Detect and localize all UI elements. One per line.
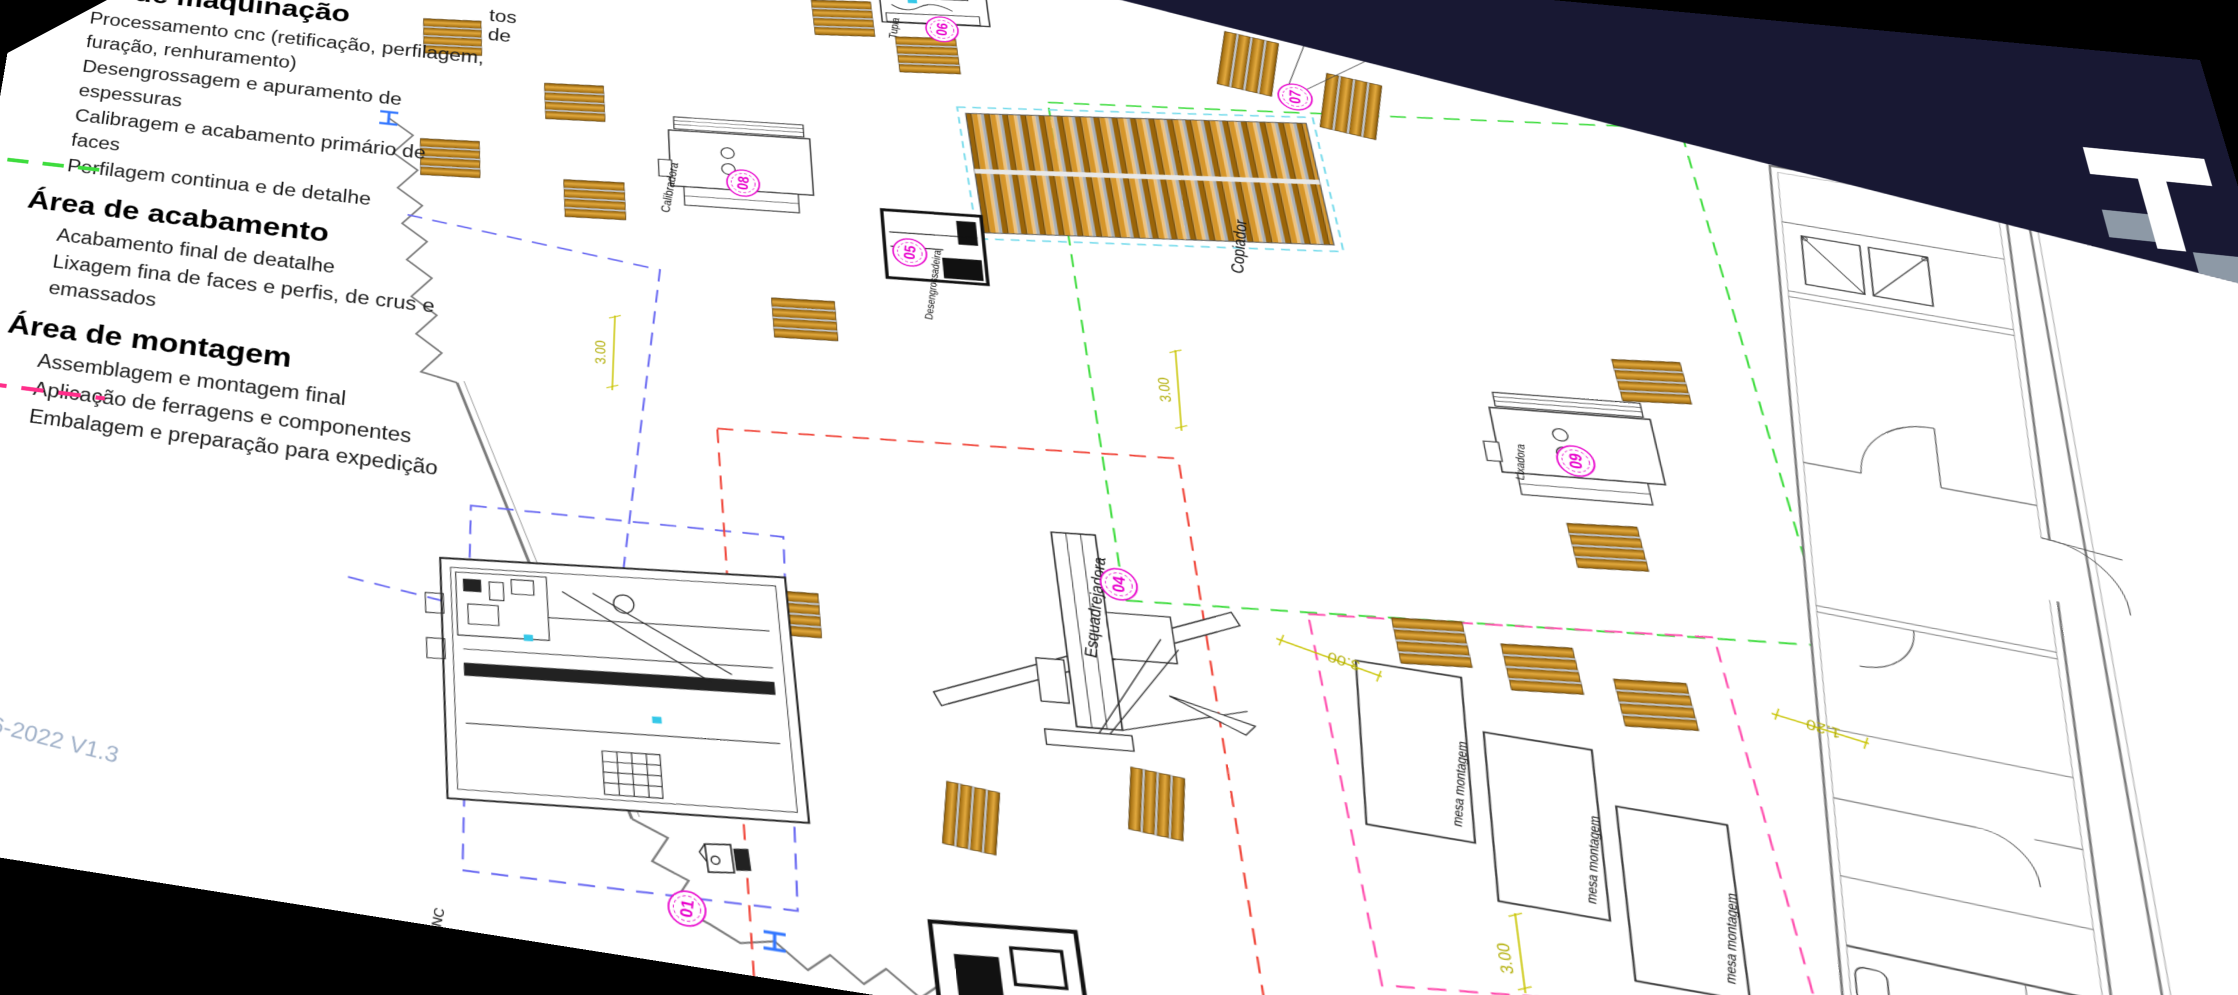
pallet-stack	[1567, 523, 1649, 571]
machine-label-lixadora: Lixadora	[1514, 442, 1527, 481]
canvas: 3.00 3.00 3.00 3.00 1.20 CNC Esquadrejad…	[0, 0, 2238, 995]
legend: tos de Área de maquinação Processamento …	[0, 0, 492, 486]
assembly-table-label: mesa montagem	[1583, 814, 1602, 906]
pallet-stack	[1392, 618, 1472, 667]
pallet-stack	[1320, 74, 1381, 140]
machine-label-cnc: CNC	[428, 906, 449, 938]
machine-cnc	[424, 557, 809, 823]
version-label: 6-2022 V1.3	[0, 712, 121, 769]
machine-partial-bottom	[930, 921, 1093, 995]
assembly-tables	[1349, 660, 1757, 995]
pallet-stack	[811, 0, 874, 36]
legend-intro-fragment: tos de	[487, 6, 517, 47]
pallet-stack	[943, 781, 1000, 855]
pallet-stack	[1614, 679, 1699, 730]
pallet-stack	[1501, 644, 1584, 694]
machine-label-copiador: Copiador	[1227, 217, 1251, 275]
pallet-stack	[1612, 360, 1692, 404]
dimension-label: 3.00	[1156, 377, 1175, 403]
dimension-label: 3.00	[1327, 648, 1362, 672]
machine-label-tupia: Tupia	[886, 16, 901, 40]
machine-tag-07: 07	[1277, 83, 1313, 112]
floorplan-slide: 3.00 3.00 3.00 3.00 1.20 CNC Esquadrejad…	[0, 0, 2238, 995]
dimension-label: 3.00	[1494, 942, 1518, 975]
assembly-table-label: mesa montagem	[1722, 891, 1739, 986]
forklift-icon	[698, 844, 751, 873]
pallet-stack	[1129, 767, 1185, 841]
logo-gray-square-left	[2102, 210, 2156, 242]
pallet-stack	[564, 180, 626, 220]
machine-tag-01: 01	[668, 889, 706, 929]
rooms-corridor	[1770, 166, 2233, 995]
pallet-stack	[772, 298, 838, 341]
pallet-block	[957, 107, 1343, 252]
pallet-stack	[545, 83, 605, 121]
zone-esquadrejadora-boundary	[717, 429, 1279, 995]
wall-zigzag-corner	[629, 819, 775, 949]
pallet-stack	[895, 37, 960, 74]
pallet-stack	[1217, 32, 1278, 97]
dimension-label: 3.00	[594, 340, 610, 365]
